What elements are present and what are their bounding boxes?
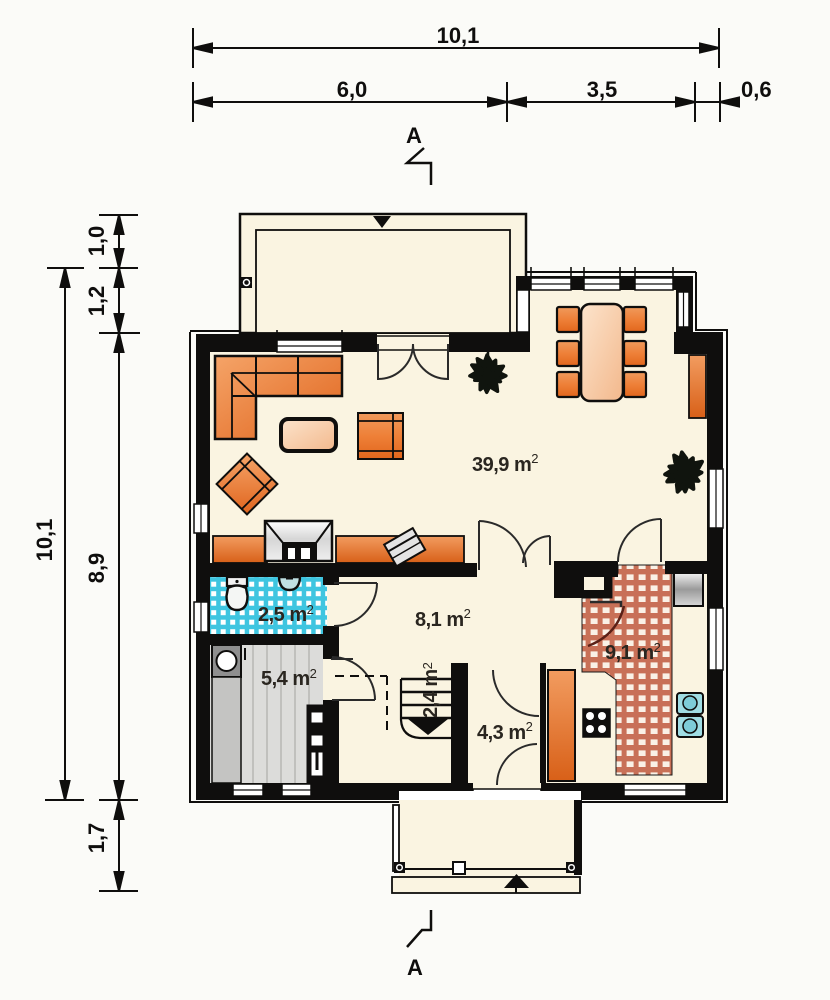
svg-text:3,5: 3,5 (587, 77, 618, 102)
svg-text:1,0: 1,0 (84, 226, 109, 257)
svg-text:8,1 m2: 8,1 m2 (415, 606, 471, 631)
svg-text:6,0: 6,0 (337, 77, 368, 102)
svg-text:A: A (406, 123, 422, 148)
svg-text:39,9 m2: 39,9 m2 (472, 451, 538, 476)
svg-text:9,1 m2: 9,1 m2 (605, 640, 661, 664)
svg-text:1,2: 1,2 (84, 286, 109, 317)
svg-text:8,9: 8,9 (84, 553, 109, 584)
svg-text:A: A (407, 955, 423, 980)
svg-text:5,4 m2: 5,4 m2 (261, 666, 317, 690)
svg-text:1,7: 1,7 (84, 823, 109, 854)
svg-text:2,4 m2: 2,4 m2 (420, 662, 442, 718)
svg-text:10,1: 10,1 (32, 519, 57, 562)
svg-text:10,1: 10,1 (437, 23, 480, 48)
svg-text:2,5 m2: 2,5 m2 (258, 602, 314, 626)
svg-text:0,6: 0,6 (741, 77, 772, 102)
svg-text:4,3 m2: 4,3 m2 (477, 719, 533, 744)
